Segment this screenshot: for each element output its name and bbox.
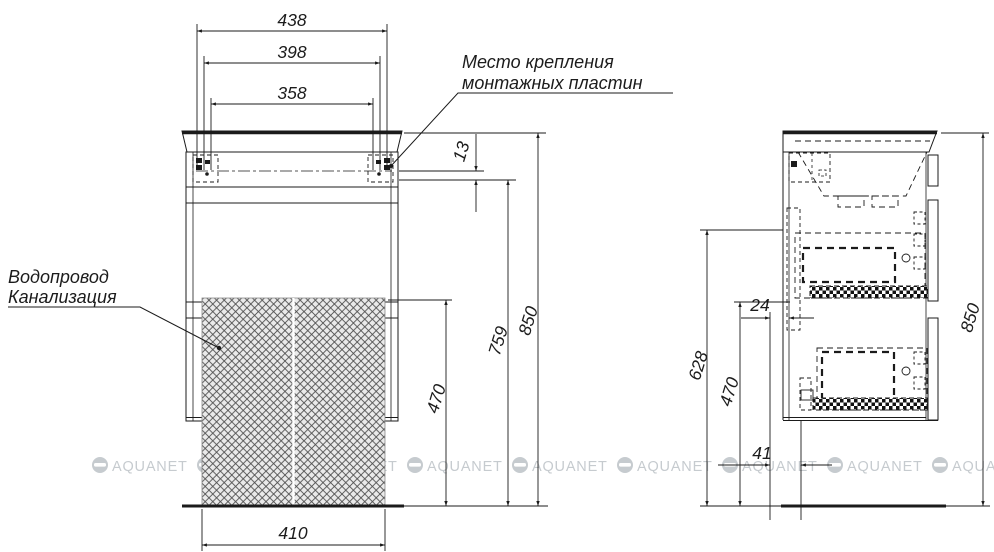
upper-drawer-hidden xyxy=(795,233,927,298)
dim-front-width-inner: 358 xyxy=(277,83,306,103)
sink-bowl-hidden xyxy=(798,152,927,207)
dim-side-back-gap: 24 xyxy=(749,295,770,315)
dim-side-bottom-gap: 41 xyxy=(752,443,771,463)
watermark-text: AQUANET xyxy=(427,459,503,475)
watermark-text: AQUANET xyxy=(112,459,188,475)
plumbing-note-line2: Канализация xyxy=(8,287,117,307)
lower-drawer-hidden xyxy=(800,348,927,410)
watermark-item: AQUANET xyxy=(932,457,994,475)
watermark-text: AQUANET xyxy=(637,459,713,475)
utilities-hatch-zone xyxy=(202,298,385,506)
mounting-note: Место крепления монтажных пластин xyxy=(389,52,673,168)
dim-front-width-outer: 438 xyxy=(277,10,306,30)
runner-brackets xyxy=(914,212,925,389)
watermark-item: AQUANET xyxy=(617,457,713,475)
plumbing-note-line1: Водопровод xyxy=(8,267,109,287)
front-view xyxy=(182,131,548,506)
technical-drawing: AQUANET AQUANET AQUANET AQUANET AQUANET … xyxy=(0,0,994,552)
mounting-plate-right xyxy=(368,155,393,182)
watermark-text: AQUANET xyxy=(952,459,994,475)
watermark-item: AQUANET xyxy=(92,457,188,475)
mounting-note-line1: Место крепления xyxy=(462,52,614,72)
watermark-text: AQUANET xyxy=(532,459,608,475)
mounting-note-line2: монтажных пластин xyxy=(462,73,643,93)
watermark-item: AQUANET xyxy=(827,457,923,475)
blueprint-canvas: AQUANET AQUANET AQUANET AQUANET AQUANET … xyxy=(0,0,994,552)
side-mounting-plate xyxy=(789,153,830,182)
dim-front-plate-offset: 13 xyxy=(449,139,474,164)
watermark-item: AQUANET xyxy=(407,457,503,475)
side-view-dimension-labels: 628 470 850 24 41 xyxy=(684,295,984,463)
dim-side-height-clearance: 470 xyxy=(715,375,743,409)
plumbing-note: Водопровод Канализация xyxy=(8,267,221,350)
dim-front-width-mid: 398 xyxy=(277,42,306,62)
watermark-item: AQUANET xyxy=(512,457,608,475)
dim-front-width-bottom: 410 xyxy=(278,523,307,543)
dim-side-height-total: 850 xyxy=(956,301,984,335)
side-view-dimensions xyxy=(700,133,989,506)
watermark-text: AQUANET xyxy=(847,459,923,475)
dim-side-height-bottom-edge: 628 xyxy=(684,349,712,383)
